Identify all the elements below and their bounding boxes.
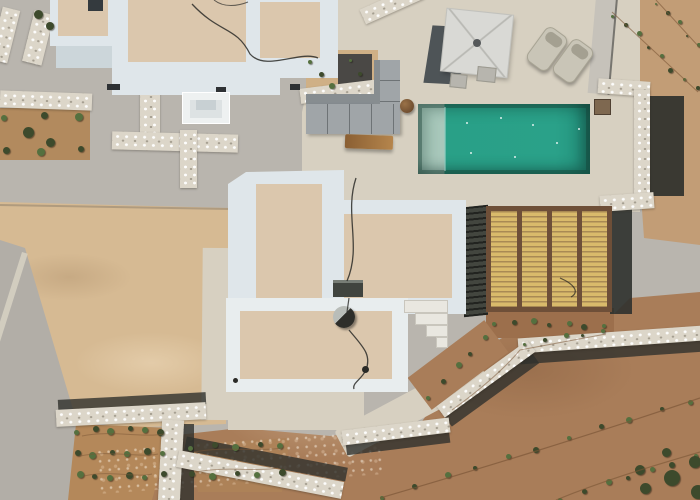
walkway-bottom <box>228 388 364 430</box>
window-slit <box>107 84 120 90</box>
terrace-step <box>426 325 448 337</box>
terrace-step <box>436 337 448 348</box>
pool-equipment-box <box>594 99 611 115</box>
deck-chair <box>449 73 467 89</box>
stone-wall <box>112 131 238 152</box>
stone-wall <box>180 130 197 188</box>
wall-shadow <box>646 96 684 196</box>
pergola-shadow <box>464 205 488 318</box>
wall-shadow <box>610 206 632 314</box>
retaining-wall <box>634 90 650 196</box>
doorway-shadow <box>88 0 103 11</box>
bamboo-pergola <box>486 206 612 312</box>
pergola-beam <box>517 211 522 307</box>
stone-wall <box>0 90 92 110</box>
skylight <box>196 100 216 110</box>
ac-unit <box>333 280 363 297</box>
umbrella-hub <box>473 39 481 47</box>
window-slit <box>290 84 300 90</box>
roof-pebbles <box>240 311 392 379</box>
stone-wall <box>0 7 20 64</box>
pergola-beam <box>577 211 582 307</box>
wooden-bench <box>345 134 393 150</box>
pergola-beam <box>547 211 552 307</box>
terrace-step <box>415 313 448 325</box>
villa-wall <box>56 46 114 68</box>
aerial-photo <box>0 0 700 500</box>
roof-vent <box>233 378 238 383</box>
pool-steps-edge <box>444 107 446 171</box>
roof-pebbles <box>256 184 322 298</box>
satellite-dish <box>333 306 355 328</box>
roof-vent <box>362 366 369 373</box>
deck-chair <box>476 66 496 83</box>
villa-roof-left <box>50 0 116 46</box>
roof-pebbles <box>260 2 320 58</box>
garden-bed-topleft <box>0 108 90 160</box>
roof-pebbles <box>128 0 246 62</box>
terrace-step <box>404 300 448 313</box>
plant-pot <box>400 99 414 113</box>
outdoor-sofa <box>306 104 400 134</box>
sofa-section <box>374 60 400 104</box>
